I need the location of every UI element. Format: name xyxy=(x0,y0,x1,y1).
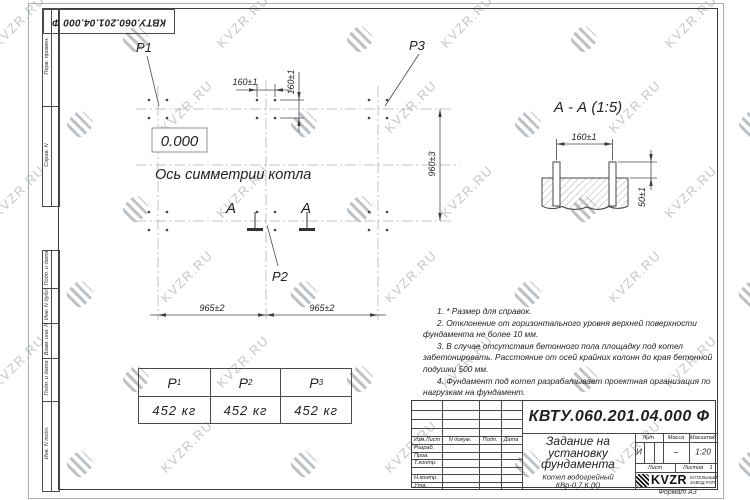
section-view-title: А - А (1:5) xyxy=(553,99,622,116)
note-4: 4. Фундамент под котел разрабатывает про… xyxy=(423,376,713,399)
kvzr-logo-text: KVZR xyxy=(651,473,687,487)
dim-965-right: 965±2 xyxy=(310,303,335,313)
load-table-header-p1: P1 xyxy=(139,369,210,396)
plan-centerlines xyxy=(136,80,460,320)
zero-level-mark: 0.000 xyxy=(161,133,199,150)
section-letter-right: А xyxy=(300,200,311,217)
title-block-scale-value: 1:20 xyxy=(695,448,711,457)
plan-load-point-p1: P1 xyxy=(136,40,152,55)
dim-965-left: 965±2 xyxy=(200,303,225,313)
dim-960: 960±3 xyxy=(427,152,437,177)
plan-load-point-p3: P3 xyxy=(409,38,426,53)
title-block-row-utv: Утв. xyxy=(414,483,427,489)
title-block-col-ndoc: N докум. xyxy=(449,437,472,443)
load-table-value-p1: 452 кг xyxy=(139,396,210,423)
section-letter-left: А xyxy=(225,200,236,217)
notes: 1. * Размер для справок. 2. Отклонение о… xyxy=(423,306,713,399)
load-table: P1 P2 P3 452 кг 452 кг 452 кг xyxy=(138,368,352,424)
dim-160-horizontal: 160±1 xyxy=(233,77,258,87)
load-table-header-p2: P2 xyxy=(210,369,281,396)
plan-dimension-arrows xyxy=(158,88,442,316)
drawing-sheet: { "watermark": { "text": "KVZR.RU" }, "t… xyxy=(0,0,750,500)
note-1: 1. * Размер для справок. xyxy=(423,306,713,318)
kvzr-logo-caption: КОТЕЛЬНЫЙ ЗАВОД РЭП xyxy=(690,475,717,485)
title-block-mass-value: – xyxy=(674,448,678,457)
title-block-col-podp: Подп. xyxy=(483,437,498,443)
title-block-row-prov: Пров. xyxy=(414,453,429,459)
title-block-sheets-label: Листов xyxy=(683,465,703,471)
dim-160-vertical: 160±1 xyxy=(286,70,296,95)
title-block-sheet-label: Лист xyxy=(648,465,662,471)
title-block-col-izm: Изм.Лист xyxy=(414,437,440,443)
title-block-col-data: Дата xyxy=(504,437,519,443)
title-block-doc-number: КВТУ.060.201.04.000 Ф xyxy=(529,408,710,426)
kvzr-logo-icon xyxy=(636,474,649,487)
title-block-product-line2: КВр-0,7 К (К) xyxy=(556,481,601,490)
sheet-layer: КВТУ.060.201.04.000 Ф Перв. примен. Спра… xyxy=(0,0,750,500)
title-block-row-tkontr: Т.контр. xyxy=(414,460,437,466)
format-label: Формат А3 xyxy=(630,489,725,496)
kvzr-logo: KVZR КОТЕЛЬНЫЙ ЗАВОД РЭП xyxy=(636,473,717,487)
section-dim-160: 160±1 xyxy=(572,132,597,142)
title-block-sheets-value: 1 xyxy=(709,465,712,471)
section-dim-50: 50±1 xyxy=(637,187,647,207)
title-block-lit-label: Лит. xyxy=(642,435,655,441)
boiler-symmetry-axis-label: Ось симметрии котла xyxy=(155,167,311,183)
load-table-value-p2: 452 кг xyxy=(210,396,281,423)
title-block-scale-label: Масштаб xyxy=(690,435,716,441)
title-block-mass-label: Масса xyxy=(668,435,685,441)
load-table-value-p3: 452 кг xyxy=(280,396,351,423)
title-block: КВТУ.060.201.04.000 Ф Задание на установ… xyxy=(411,400,716,488)
plan-load-point-p2: P2 xyxy=(272,269,289,284)
load-table-header-p3: P3 xyxy=(280,369,351,396)
title-block-lit-value: И xyxy=(636,448,642,457)
note-3: 3. В случае отсутствия бетонного пола пл… xyxy=(423,341,713,376)
title-block-row-nkontr: Н.контр. xyxy=(414,475,438,481)
title-block-row-razrab: Разраб. xyxy=(414,445,434,451)
note-2: 2. Отклонение от горизонтального уровня … xyxy=(423,318,713,341)
title-block-title-line3: фундамента xyxy=(541,457,615,471)
